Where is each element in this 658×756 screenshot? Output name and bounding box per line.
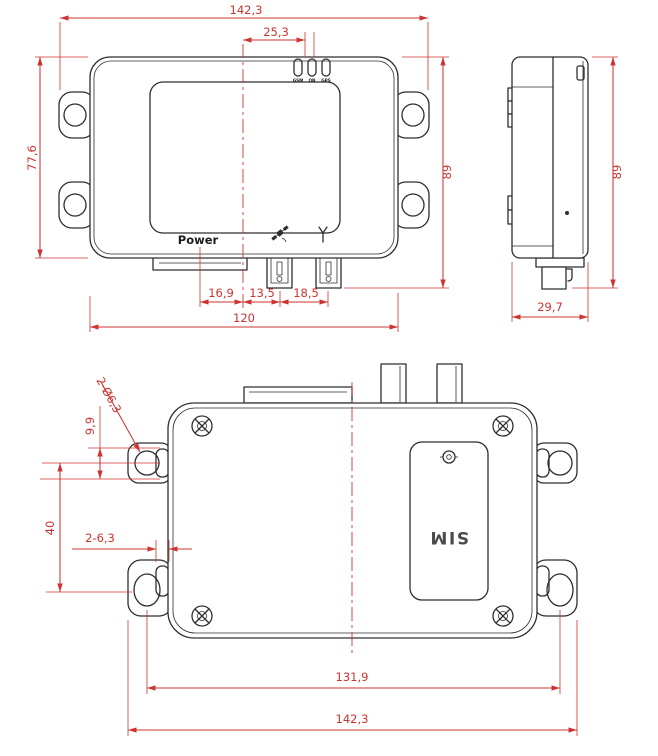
side-view: 89 29,7 [508, 57, 624, 322]
dim-front-overall-width: 142,3 [230, 3, 263, 17]
side-bottom-connector [536, 258, 584, 289]
dim-hole-spacing-horizontal: 131,9 [336, 670, 369, 684]
dim-front-overall-height: 89 [440, 165, 454, 180]
dim-front-body-height: 77,6 [25, 145, 39, 171]
dim-front-body-width: 120 [233, 311, 255, 325]
callout-slots: 2-6,3 [85, 531, 115, 545]
dim-power-to-center: 16,9 [208, 286, 234, 300]
dim-side-depth: 29,7 [537, 300, 563, 314]
bottom-view: SIM 2-Ø6,3 9,9 40 2-6,3 131,9 [40, 364, 577, 736]
power-label: Power [178, 233, 219, 247]
dim-bottom-overall-width: 142,3 [336, 712, 369, 726]
drawing-canvas: GSM ON GPS Power [0, 0, 658, 756]
antenna-post [381, 364, 406, 403]
dim-led-offset: 25,3 [263, 25, 289, 39]
ear-bottom-right [533, 560, 577, 616]
power-connector-edge [244, 387, 352, 403]
side-pin-hole [565, 211, 569, 215]
dim-center-to-gps: 13,5 [249, 286, 275, 300]
dim-gps-to-antenna: 18,5 [293, 286, 319, 300]
front-view: GSM ON GPS Power [25, 3, 454, 332]
dim-hole-spacing-vertical: 40 [43, 521, 57, 536]
callout-mount-holes: 2-Ø6,3 [93, 375, 124, 416]
dim-side-overall-height: 89 [610, 165, 624, 180]
sim-cover: SIM [410, 442, 488, 600]
antenna-post [437, 364, 462, 403]
led-label-3: GPS [321, 78, 331, 83]
sim-label: SIM [429, 527, 469, 547]
front-connectors [153, 256, 341, 288]
led-label-1: GSM [293, 78, 304, 83]
dimension-drawing: GSM ON GPS Power [0, 0, 658, 756]
dim-hole-edge: 9,9 [83, 417, 97, 435]
bottom-top-connectors [244, 364, 462, 403]
front-body [90, 57, 398, 258]
led-label-2: ON [308, 78, 316, 83]
